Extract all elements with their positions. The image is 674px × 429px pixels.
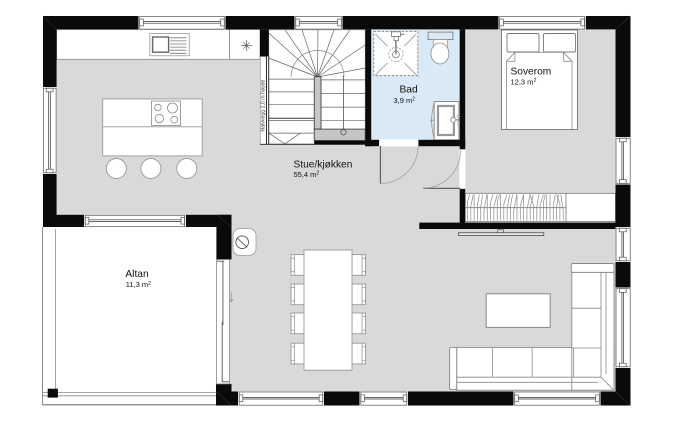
svg-text:3,9 m2: 3,9 m2 bbox=[394, 96, 416, 105]
svg-text:12,3 m2: 12,3 m2 bbox=[511, 77, 537, 86]
svg-text:Soverom: Soverom bbox=[511, 67, 552, 78]
svg-text:Halvvegg 1,0 m høyde: Halvvegg 1,0 m høyde bbox=[261, 79, 267, 131]
svg-text:Bad: Bad bbox=[400, 85, 418, 96]
svg-text:Stue/kjøkken: Stue/kjøkken bbox=[294, 159, 353, 170]
svg-text:11,3 m2: 11,3 m2 bbox=[126, 280, 151, 289]
svg-text:55,4 m2: 55,4 m2 bbox=[294, 170, 320, 179]
svg-text:Altan: Altan bbox=[125, 269, 148, 280]
